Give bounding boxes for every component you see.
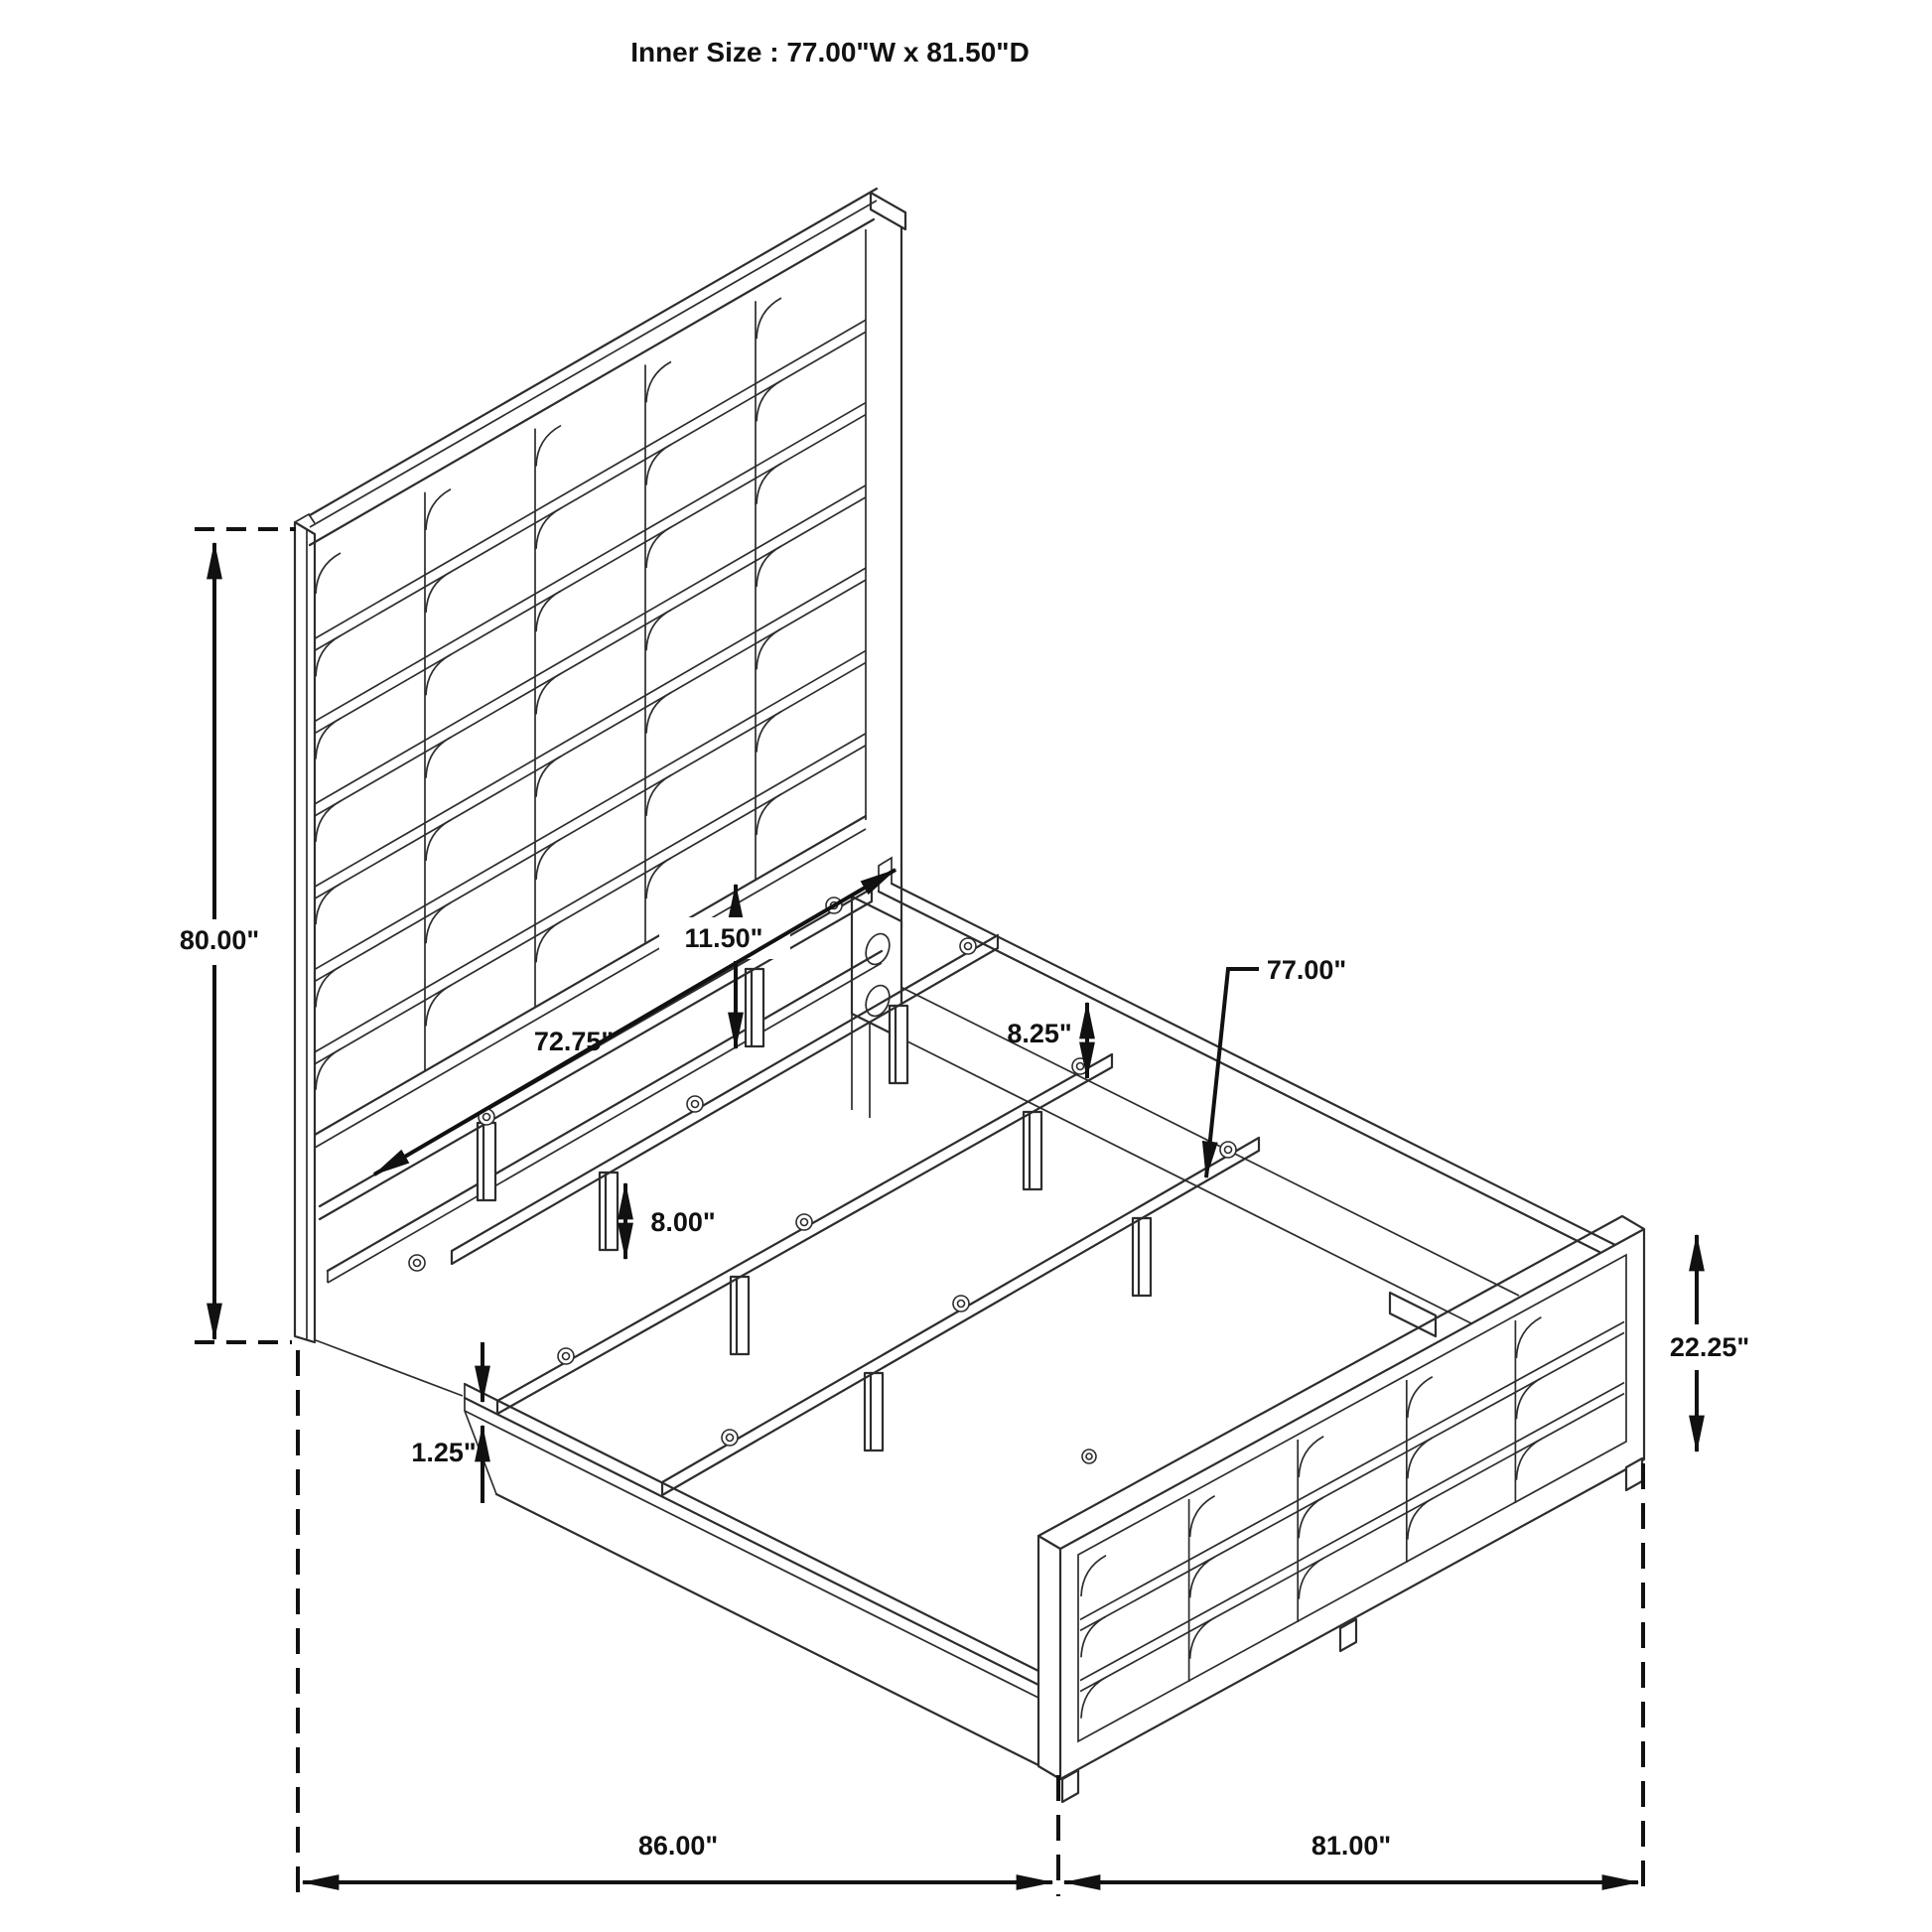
svg-text:77.00": 77.00" [1267, 955, 1346, 985]
near-side-rail-ledge [465, 1384, 1038, 1671]
dim-support-rail-length: 72.75" [374, 870, 896, 1174]
slat-4 [662, 1138, 1259, 1495]
near-side-rail-cap [465, 1398, 1038, 1685]
headboard-left-post [295, 522, 315, 1342]
headboard-panel-bottom [315, 816, 866, 1135]
dim-headboard-height: 80.00" [162, 543, 279, 1339]
slat-screws [409, 897, 1236, 1463]
far-side-rail-top [892, 884, 1615, 1245]
bed-dimension-diagram-page: Inner Size : 77.00"W x 81.50"D [0, 0, 1932, 1932]
svg-text:11.50": 11.50" [685, 923, 763, 953]
dim-overall-width: 81.00" [1064, 1831, 1638, 1882]
slat-leg [1133, 1218, 1151, 1296]
headboard-tufting [315, 298, 866, 1090]
footboard [1038, 1216, 1644, 1802]
dim-headboard-clearance: 11.50" [659, 885, 790, 1048]
footboard-face [1060, 1229, 1644, 1779]
dimension-annotations: 80.00" 11.50" 72.75" 8.25" 77.00" 8.00" [162, 543, 1749, 1882]
diagram-title: Inner Size : 77.00"W x 81.50"D [630, 37, 1030, 68]
dim-overall-length: 86.00" [303, 1831, 1052, 1882]
svg-text:86.00": 86.00" [638, 1831, 718, 1861]
slat-leg [865, 1373, 883, 1450]
dim-slat-leg-height: 8.00" [625, 1183, 716, 1259]
svg-text:1.25": 1.25" [411, 1438, 476, 1467]
slat-leg [890, 1006, 907, 1083]
svg-text:8.00": 8.00" [650, 1207, 715, 1237]
svg-text:81.00": 81.00" [1311, 1831, 1391, 1861]
svg-text:72.75": 72.75" [534, 1027, 614, 1056]
dim-rail-lip: 1.25" [411, 1342, 483, 1503]
bed-dimension-diagram: Inner Size : 77.00"W x 81.50"D [0, 0, 1932, 1932]
slat-leg [600, 1173, 618, 1250]
bed-frame [316, 858, 1615, 1765]
slat-leg [731, 1277, 749, 1354]
slat-leg [478, 1123, 495, 1200]
slat-3 [497, 1054, 1112, 1414]
slat-leg [1024, 1112, 1041, 1189]
svg-text:8.25": 8.25" [1007, 1019, 1071, 1048]
svg-text:80.00": 80.00" [180, 925, 259, 955]
footboard-left-end [1038, 1536, 1060, 1779]
slat-2 [452, 935, 998, 1264]
headboard-right-post-cap [871, 193, 905, 229]
dim-footboard-height: 22.25" [1670, 1235, 1749, 1451]
extension-lines [195, 529, 1643, 1896]
slat-leg [746, 969, 763, 1046]
headboard-top-cap [310, 189, 877, 515]
svg-text:22.25": 22.25" [1670, 1332, 1749, 1362]
